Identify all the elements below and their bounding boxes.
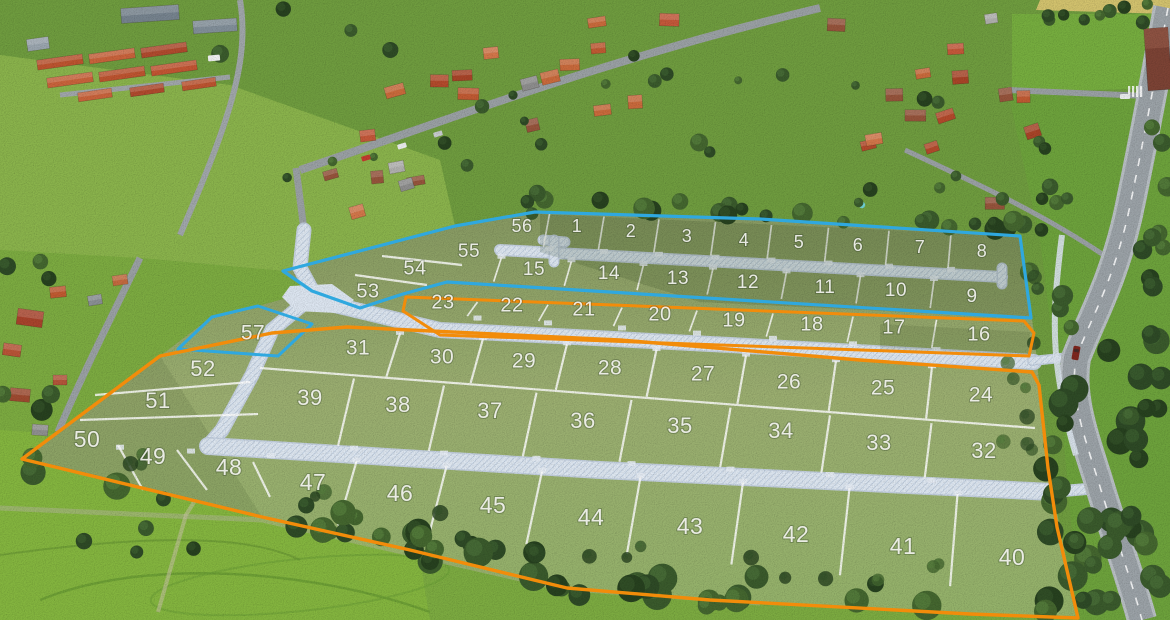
plot-label-46[interactable]: 46 [387, 480, 414, 506]
plot-map-svg: 1234567891011121314151617181920212223242… [0, 0, 1170, 620]
plot-label-21[interactable]: 21 [572, 298, 595, 320]
plot-label-57[interactable]: 57 [241, 322, 265, 345]
plot-label-4[interactable]: 4 [739, 230, 750, 250]
plot-label-30[interactable]: 30 [430, 346, 454, 369]
plot-label-53[interactable]: 53 [356, 280, 379, 302]
plot-label-35[interactable]: 35 [667, 413, 692, 438]
plot-label-22[interactable]: 22 [500, 294, 523, 316]
plot-label-40[interactable]: 40 [999, 544, 1026, 570]
plot-label-43[interactable]: 43 [677, 513, 704, 539]
plot-label-38[interactable]: 38 [385, 392, 410, 417]
plot-label-2[interactable]: 2 [626, 221, 637, 241]
plot-label-27[interactable]: 27 [691, 363, 715, 386]
plot-label-32[interactable]: 32 [971, 438, 996, 463]
plot-label-48[interactable]: 48 [216, 454, 243, 480]
plot-label-13[interactable]: 13 [667, 268, 689, 289]
plot-label-8[interactable]: 8 [977, 241, 988, 261]
plot-label-17[interactable]: 17 [882, 316, 905, 338]
plot-label-16[interactable]: 16 [967, 323, 990, 345]
plot-label-7[interactable]: 7 [915, 237, 926, 257]
plot-label-24[interactable]: 24 [969, 384, 993, 407]
plot-label-11[interactable]: 11 [815, 277, 836, 298]
plot-label-3[interactable]: 3 [682, 226, 693, 246]
plot-label-14[interactable]: 14 [598, 263, 620, 284]
plot-label-39[interactable]: 39 [297, 385, 322, 410]
plot-label-6[interactable]: 6 [853, 235, 864, 255]
plot-label-31[interactable]: 31 [346, 337, 370, 360]
plot-label-28[interactable]: 28 [598, 357, 622, 380]
plot-label-23[interactable]: 23 [431, 291, 454, 313]
plot-label-1[interactable]: 1 [572, 216, 583, 236]
plot-label-10[interactable]: 10 [885, 280, 907, 301]
plot-label-55[interactable]: 55 [458, 241, 480, 262]
plot-label-9[interactable]: 9 [966, 286, 977, 307]
plot-label-42[interactable]: 42 [783, 521, 810, 547]
plot-label-18[interactable]: 18 [800, 313, 823, 335]
plot-label-41[interactable]: 41 [890, 533, 917, 559]
plot-label-56[interactable]: 56 [511, 216, 532, 236]
plot-label-37[interactable]: 37 [477, 398, 502, 423]
plot-label-36[interactable]: 36 [570, 408, 595, 433]
plot-label-20[interactable]: 20 [648, 303, 671, 325]
plot-label-50[interactable]: 50 [74, 426, 101, 452]
plot-label-34[interactable]: 34 [768, 418, 793, 443]
plot-label-45[interactable]: 45 [480, 492, 507, 518]
plot-label-47[interactable]: 47 [300, 469, 327, 495]
plot-label-51[interactable]: 51 [145, 388, 170, 413]
plot-label-26[interactable]: 26 [777, 371, 801, 394]
plot-label-33[interactable]: 33 [866, 430, 891, 455]
plot-label-44[interactable]: 44 [578, 504, 605, 530]
plot-label-19[interactable]: 19 [722, 309, 745, 331]
plot-label-12[interactable]: 12 [737, 272, 759, 293]
plot-label-29[interactable]: 29 [512, 350, 536, 373]
plot-label-15[interactable]: 15 [523, 259, 545, 280]
plot-label-25[interactable]: 25 [871, 377, 895, 400]
plot-label-5[interactable]: 5 [794, 232, 805, 252]
aerial-plot-map: 1234567891011121314151617181920212223242… [0, 0, 1170, 620]
plot-label-52[interactable]: 52 [190, 356, 215, 381]
plot-label-54[interactable]: 54 [403, 257, 426, 279]
plot-label-49[interactable]: 49 [140, 443, 167, 469]
